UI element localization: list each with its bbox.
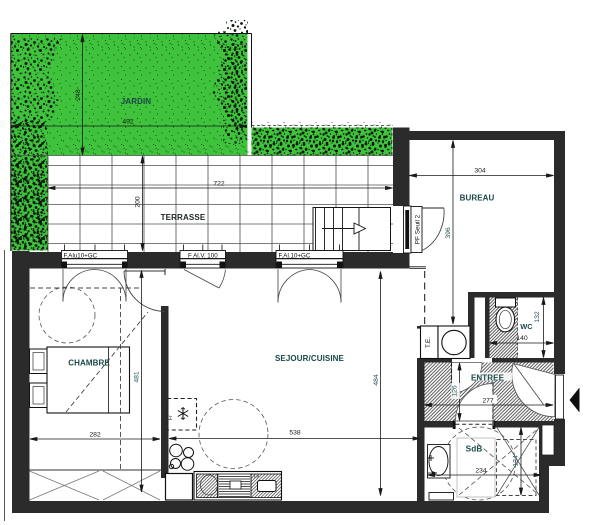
svg-text:TERRASSE: TERRASSE — [161, 213, 206, 222]
svg-text:SdB: SdB — [466, 445, 483, 454]
svg-text:JARDIN: JARDIN — [121, 97, 152, 106]
svg-text:F.Al.10+GC: F.Al.10+GC — [279, 252, 311, 259]
svg-text:PF Seuil 2: PF Seuil 2 — [414, 214, 421, 244]
svg-text:Lv: Lv — [254, 474, 260, 480]
svg-text:F Al.V. 100: F Al.V. 100 — [188, 252, 218, 259]
svg-text:F.Alu10+GC: F.Alu10+GC — [64, 252, 98, 259]
svg-text:234: 234 — [475, 468, 487, 475]
svg-text:CHAMBRE: CHAMBRE — [68, 358, 110, 367]
svg-text:722: 722 — [213, 181, 225, 188]
svg-text:T.E.: T.E. — [425, 337, 432, 348]
svg-text:538: 538 — [289, 430, 301, 437]
svg-text:ENTREE: ENTREE — [471, 373, 505, 382]
svg-text:484: 484 — [373, 374, 380, 386]
svg-text:132: 132 — [534, 311, 541, 323]
svg-text:BUREAU: BUREAU — [460, 193, 495, 202]
svg-text:140: 140 — [516, 335, 528, 342]
svg-text:134: 134 — [513, 455, 520, 467]
svg-text:126: 126 — [452, 385, 459, 397]
svg-text:481: 481 — [134, 371, 141, 383]
svg-text:492: 492 — [122, 119, 134, 126]
svg-text:282: 282 — [89, 432, 101, 439]
svg-text:WC: WC — [520, 322, 533, 331]
svg-text:SEJOUR/CUISINE: SEJOUR/CUISINE — [275, 354, 345, 363]
svg-text:200: 200 — [135, 196, 142, 208]
svg-text:248: 248 — [75, 89, 82, 101]
svg-text:304: 304 — [474, 168, 486, 175]
svg-text:Fr: Fr — [168, 415, 174, 420]
svg-text:277: 277 — [482, 398, 494, 405]
svg-text:396: 396 — [445, 227, 452, 239]
